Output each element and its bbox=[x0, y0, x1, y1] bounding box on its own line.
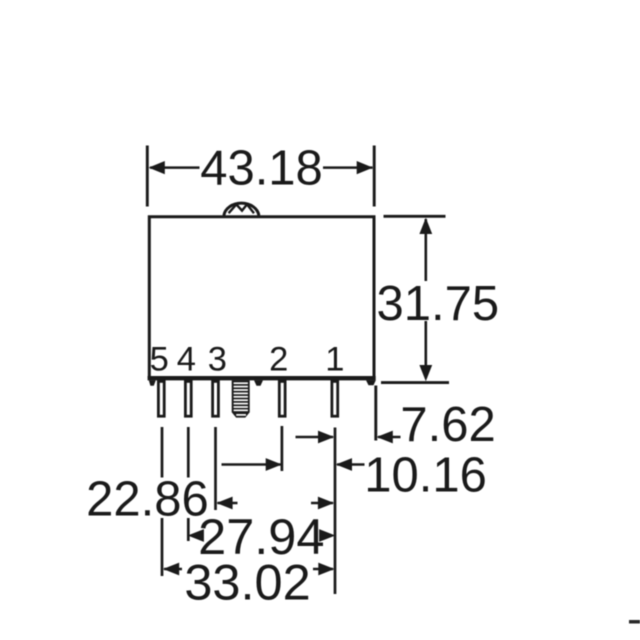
svg-text:22.86: 22.86 bbox=[86, 473, 209, 527]
svg-text:1: 1 bbox=[325, 341, 344, 379]
svg-text:3: 3 bbox=[208, 341, 227, 379]
svg-text:2: 2 bbox=[269, 341, 288, 379]
svg-text:5: 5 bbox=[150, 341, 169, 379]
svg-text:10.16: 10.16 bbox=[364, 449, 487, 503]
svg-text:43.18: 43.18 bbox=[200, 141, 323, 195]
svg-text:7.62: 7.62 bbox=[400, 398, 495, 452]
svg-text:33.02: 33.02 bbox=[184, 554, 310, 611]
svg-text:4: 4 bbox=[177, 341, 196, 379]
svg-text:31.75: 31.75 bbox=[376, 277, 499, 331]
